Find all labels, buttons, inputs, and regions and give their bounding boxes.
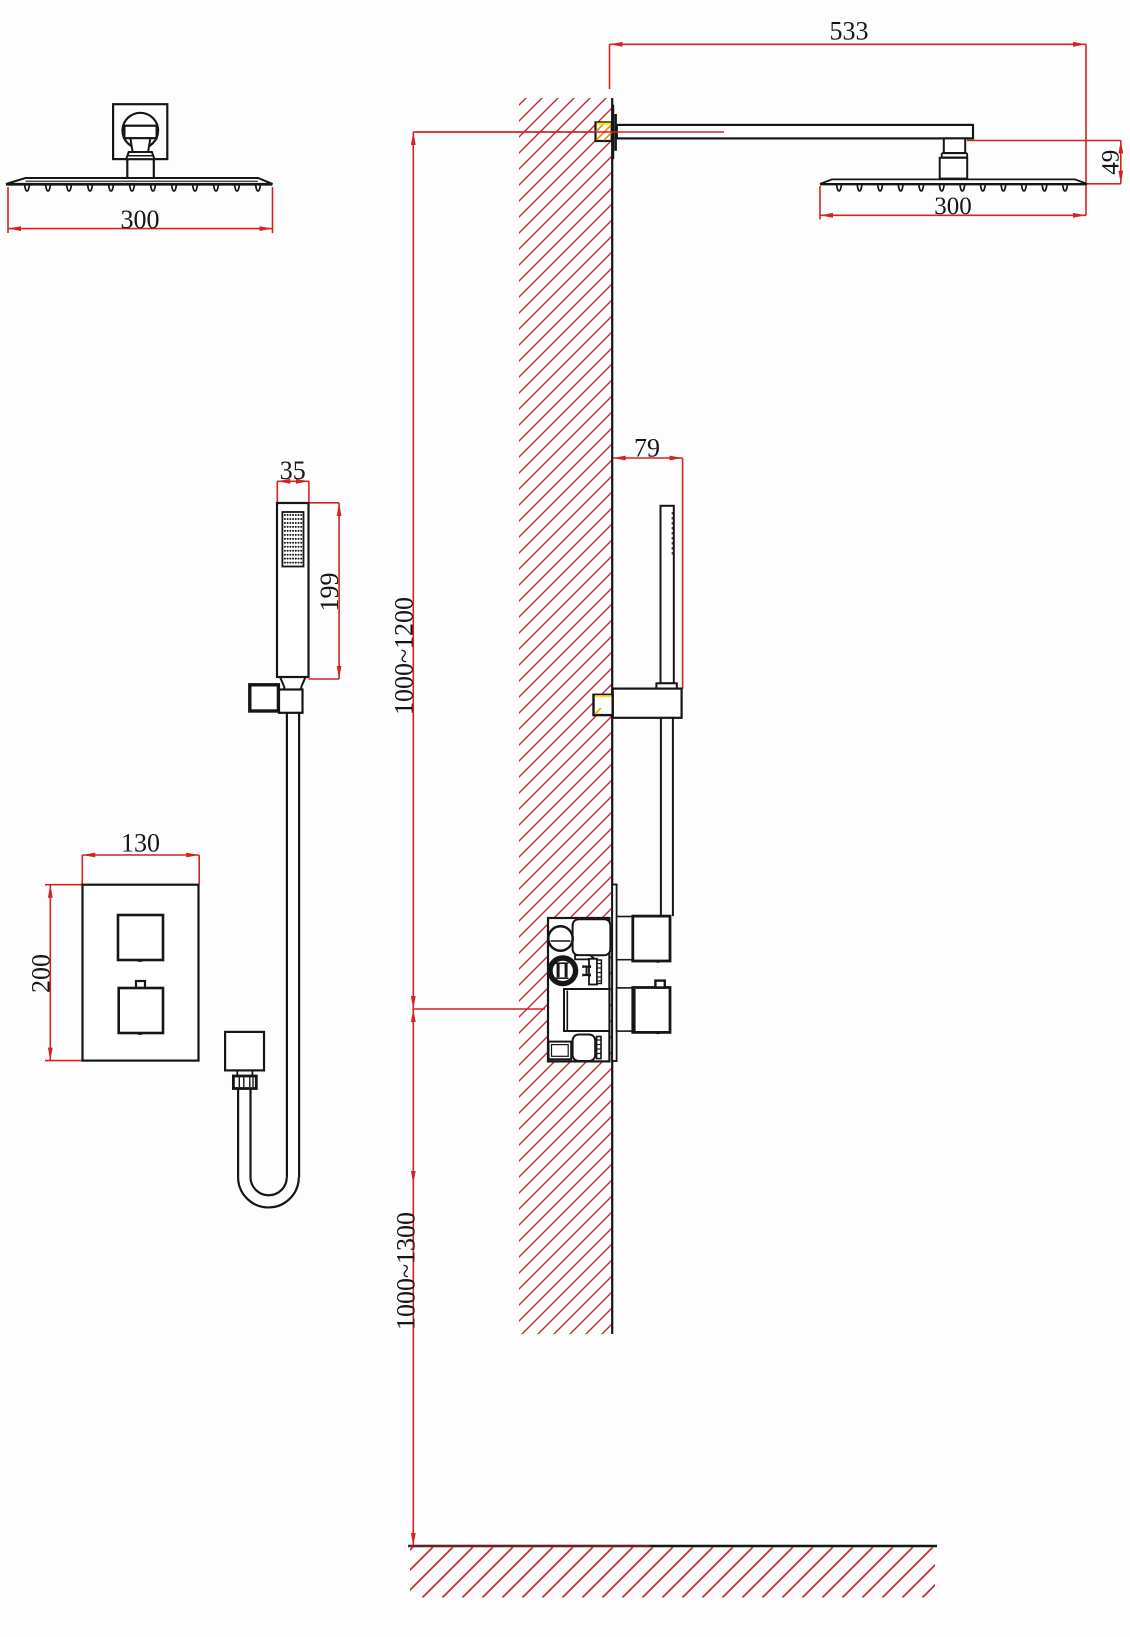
svg-text:300: 300 (934, 193, 972, 220)
svg-text:1000~1200: 1000~1200 (389, 597, 418, 715)
svg-text:1000~1300: 1000~1300 (391, 1212, 420, 1330)
svg-text:79: 79 (634, 434, 660, 463)
svg-text:130: 130 (121, 829, 160, 858)
svg-text:533: 533 (830, 17, 869, 46)
svg-text:35: 35 (280, 456, 306, 485)
svg-text:200: 200 (27, 954, 56, 993)
svg-text:49: 49 (1098, 150, 1125, 175)
svg-text:199: 199 (315, 573, 344, 612)
svg-text:300: 300 (121, 205, 160, 234)
